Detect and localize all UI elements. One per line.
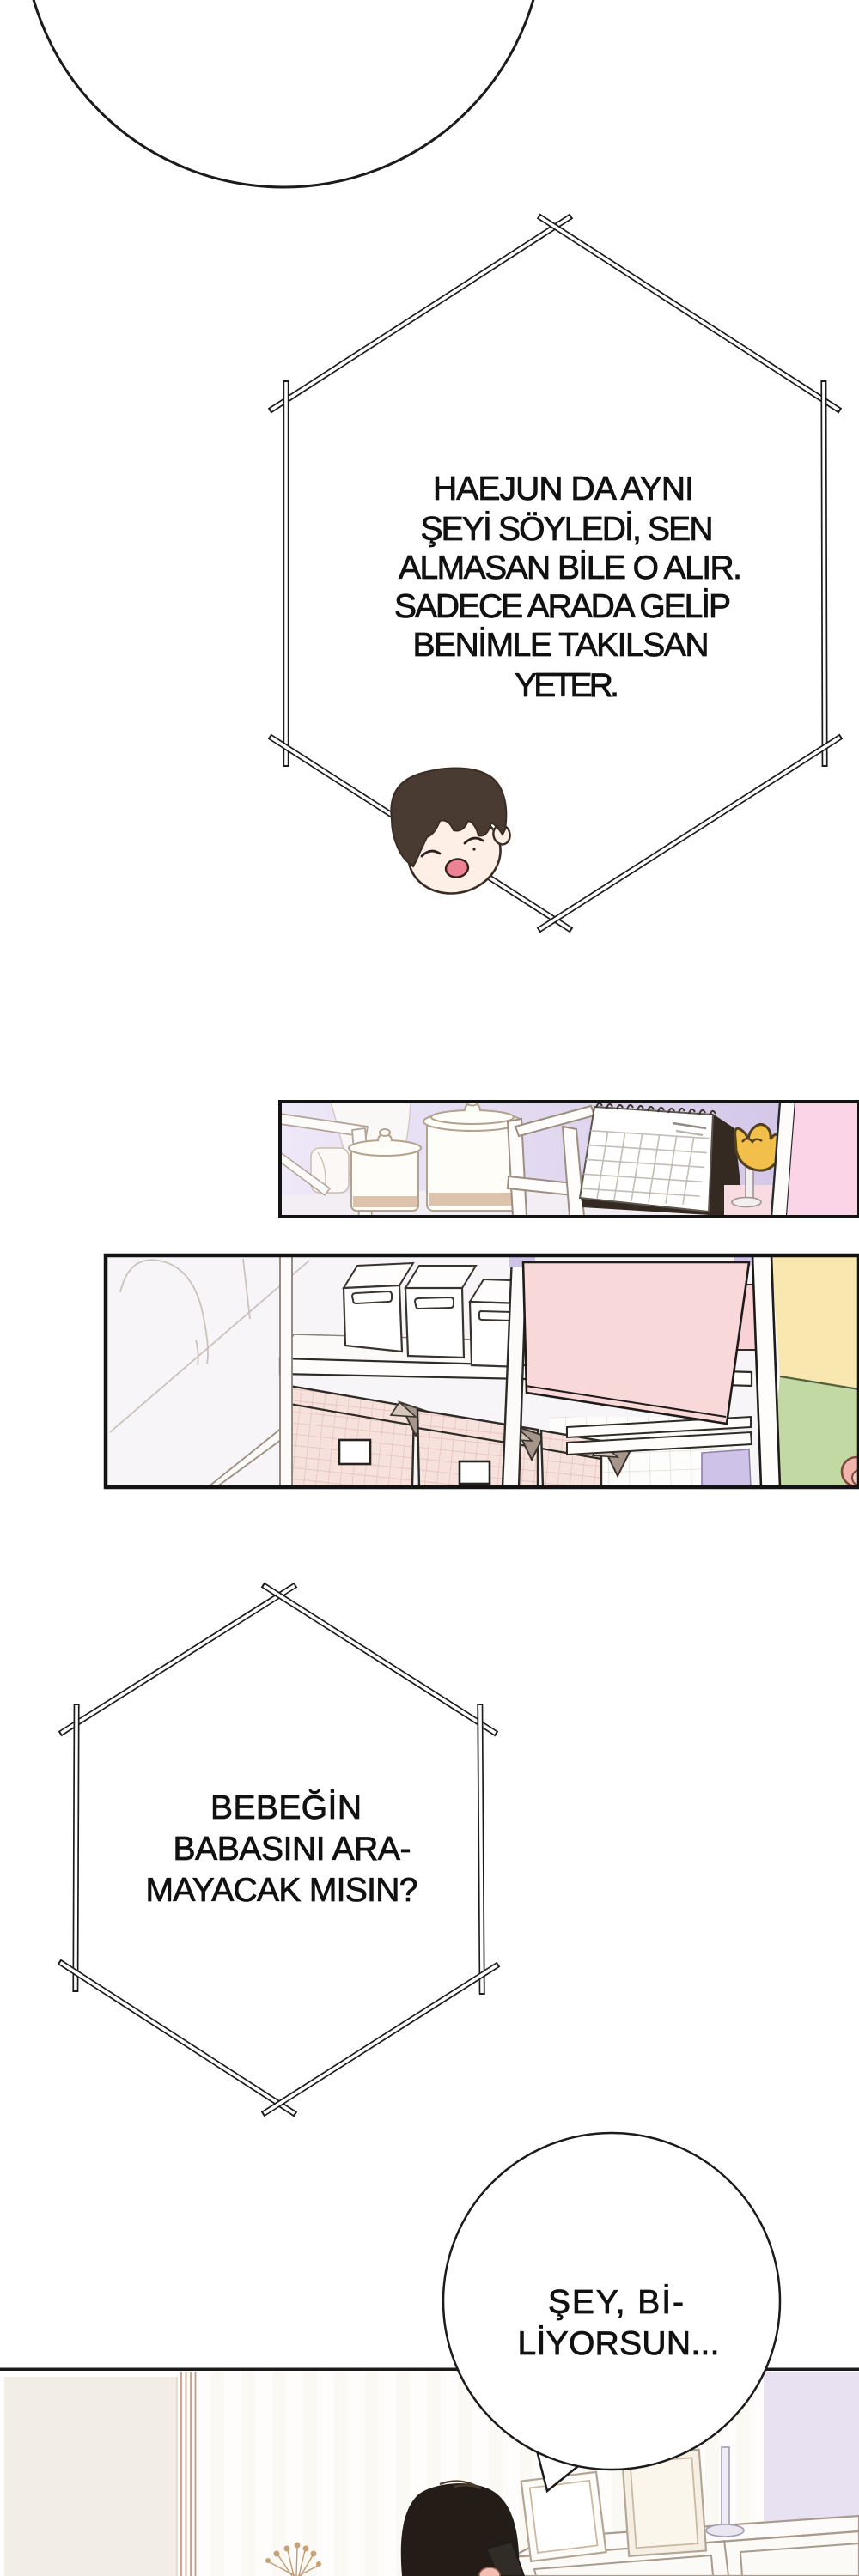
svg-text:ŞEY, Bİ-: ŞEY, Bİ- [548, 2284, 684, 2321]
svg-text:MAYACAK MISIN?: MAYACAK MISIN? [146, 1872, 418, 1909]
svg-text:BEBEĞİN: BEBEĞİN [210, 1789, 362, 1826]
svg-text:ŞEYİ SÖYLEDİ, SEN: ŞEYİ SÖYLEDİ, SEN [421, 511, 714, 548]
svg-text:YETER.: YETER. [515, 667, 619, 704]
svg-text:BENİMLE TAKILSAN: BENİMLE TAKILSAN [413, 627, 710, 664]
svg-text:HAEJUN DA AYNI: HAEJUN DA AYNI [433, 471, 694, 507]
svg-text:LİYORSUN...: LİYORSUN... [518, 2325, 720, 2362]
svg-text:SADECE ARADA GELİP: SADECE ARADA GELİP [394, 588, 731, 625]
svg-text:BABASINI ARA-: BABASINI ARA- [174, 1831, 411, 1868]
svg-text:ALMASAN BİLE O ALIR.: ALMASAN BİLE O ALIR. [399, 550, 742, 586]
